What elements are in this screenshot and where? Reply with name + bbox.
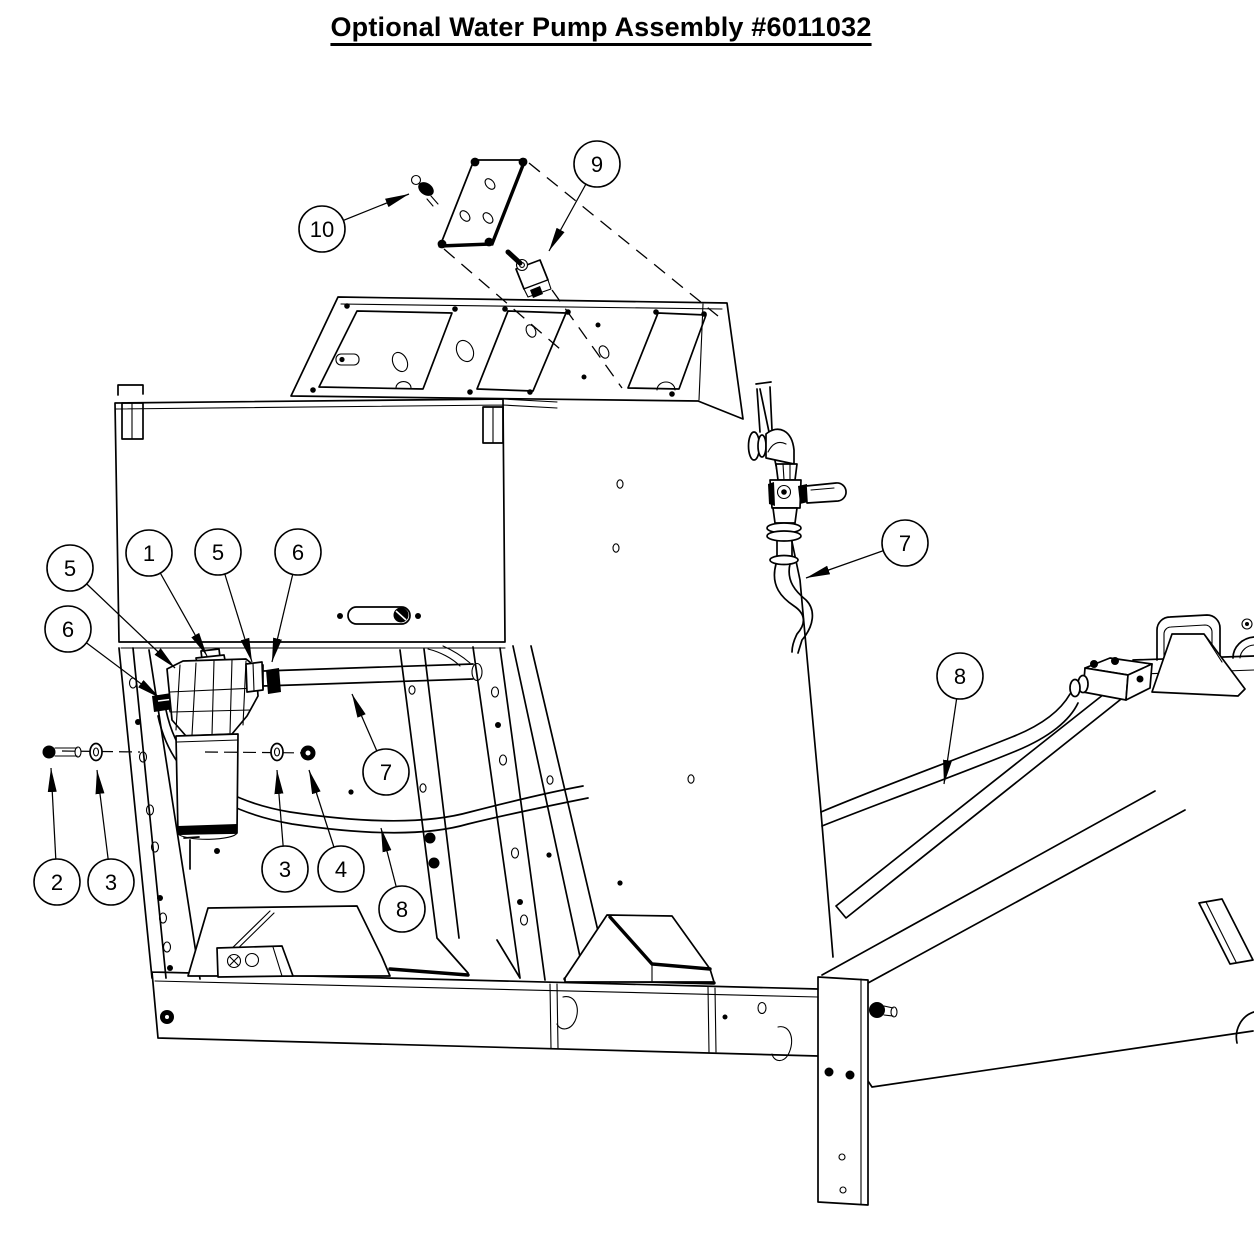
toggle-switch — [508, 252, 551, 298]
svg-text:10: 10 — [310, 217, 334, 242]
svg-text:7: 7 — [380, 760, 392, 785]
switch-mounting-plate — [438, 158, 528, 249]
skid-beam — [152, 969, 818, 1061]
water-pump — [152, 649, 263, 869]
callout-4: 4 — [318, 846, 364, 892]
drain-valve-assembly — [749, 429, 847, 653]
incline-wedge — [1152, 634, 1245, 696]
callout-6b: 6 — [275, 529, 321, 575]
callout-7: 7 — [363, 749, 409, 795]
callout-5: 5 — [47, 545, 93, 591]
parts-diagram-canvas: 1 2 3 3 4 5 5 6 6 7 7 8 — [0, 0, 1254, 1237]
callout-1: 1 — [126, 530, 172, 576]
callout-5b: 5 — [195, 529, 241, 575]
svg-text:8: 8 — [954, 664, 966, 689]
callout-3b: 3 — [262, 846, 308, 892]
svg-text:7: 7 — [899, 531, 911, 556]
flat-washer — [271, 744, 283, 761]
panel-screw-dots — [310, 303, 707, 397]
callout-8b: 8 — [937, 653, 983, 699]
callout-8: 8 — [379, 886, 425, 932]
bolt — [43, 746, 82, 759]
svg-text:3: 3 — [105, 870, 117, 895]
middle-wedge-bracket — [565, 915, 714, 982]
panel-holes — [336, 323, 675, 390]
callout-9: 9 — [574, 141, 620, 187]
callout-2: 2 — [34, 859, 80, 905]
left-tank — [115, 385, 557, 648]
breather-fitting — [412, 176, 439, 207]
lock-nut — [301, 746, 316, 761]
svg-text:8: 8 — [396, 897, 408, 922]
suction-hose — [250, 646, 482, 694]
callout-10: 10 — [299, 206, 345, 252]
manifold-block — [1070, 657, 1152, 700]
callout-7b: 7 — [882, 520, 928, 566]
wheel-arch — [1236, 1012, 1254, 1043]
svg-text:2: 2 — [51, 870, 63, 895]
svg-text:3: 3 — [279, 857, 291, 882]
tongue-beam — [822, 791, 1185, 983]
svg-text:5: 5 — [212, 540, 224, 565]
filter-bowl — [176, 734, 238, 869]
svg-text:1: 1 — [143, 541, 155, 566]
svg-text:5: 5 — [64, 556, 76, 581]
svg-text:6: 6 — [62, 617, 74, 642]
valve-handle — [806, 483, 846, 503]
left-wedge-bracket — [188, 906, 390, 977]
callout-6: 6 — [45, 606, 91, 652]
pump-mount-legs — [400, 646, 610, 982]
diagram-page: Optional Water Pump Assembly #6011032 — [0, 0, 1254, 1237]
tank-cap — [1233, 637, 1254, 658]
svg-text:4: 4 — [335, 857, 347, 882]
svg-text:6: 6 — [292, 540, 304, 565]
flat-washer — [90, 744, 102, 761]
discharge-hose — [158, 694, 1078, 833]
jack-post — [818, 977, 897, 1205]
callout-3: 3 — [88, 859, 134, 905]
trailer-right-body — [822, 615, 1254, 1087]
svg-text:9: 9 — [591, 152, 603, 177]
